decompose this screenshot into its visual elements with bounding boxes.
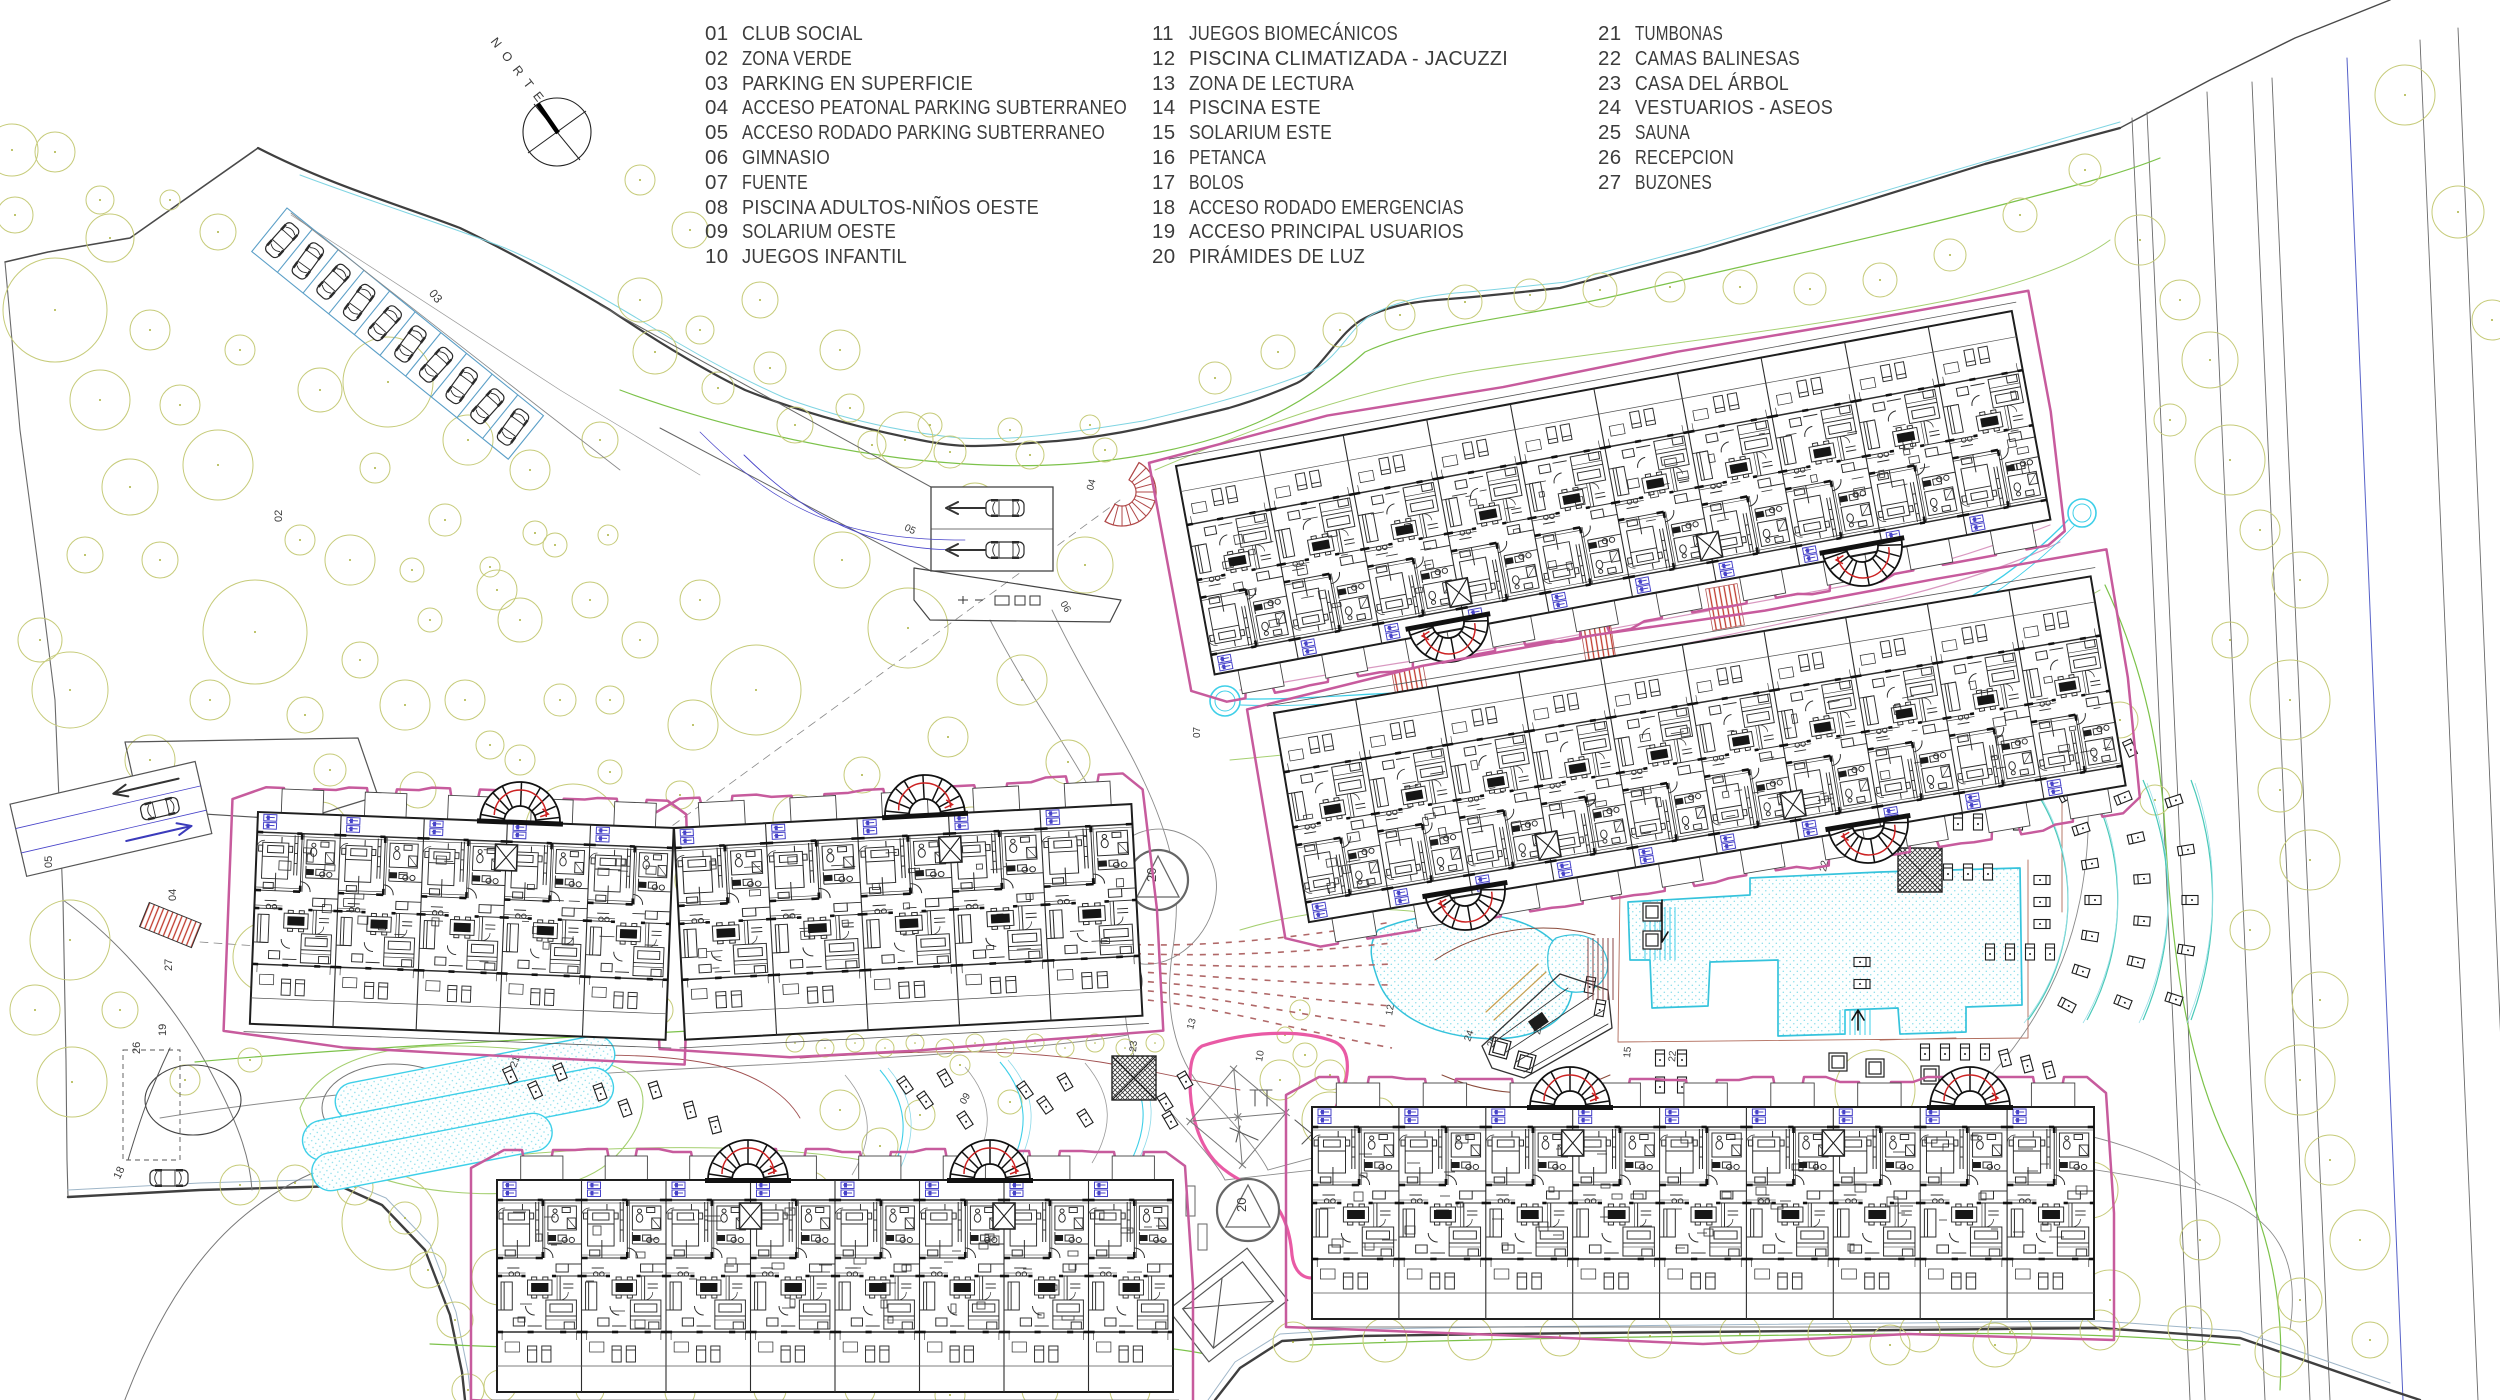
svg-text:ACCESO PEATONAL PARKING SUBTER: ACCESO PEATONAL PARKING SUBTERRANEO	[742, 96, 1127, 119]
svg-text:04: 04	[705, 96, 728, 119]
svg-text:RECEPCION: RECEPCION	[1635, 146, 1734, 169]
svg-text:BOLOS: BOLOS	[1189, 171, 1244, 194]
svg-text:23: 23	[1128, 1040, 1140, 1052]
svg-text:21: 21	[1598, 22, 1621, 45]
svg-text:26: 26	[131, 1042, 143, 1054]
svg-text:PARKING EN SUPERFICIE: PARKING EN SUPERFICIE	[742, 72, 973, 95]
svg-text:JUEGOS INFANTIL: JUEGOS INFANTIL	[742, 245, 907, 268]
svg-text:PISCINA ESTE: PISCINA ESTE	[1189, 96, 1321, 119]
svg-text:25: 25	[1598, 121, 1621, 144]
svg-text:12: 12	[1152, 47, 1175, 70]
svg-text:CLUB SOCIAL: CLUB SOCIAL	[742, 22, 863, 45]
svg-text:07: 07	[1192, 726, 1203, 738]
svg-text:11: 11	[1152, 22, 1174, 45]
svg-text:SOLARIUM OESTE: SOLARIUM OESTE	[742, 220, 896, 243]
svg-text:15: 15	[1622, 1046, 1634, 1058]
svg-text:05: 05	[705, 121, 728, 144]
svg-text:27: 27	[163, 959, 175, 971]
svg-text:CAMAS BALINESAS: CAMAS BALINESAS	[1635, 47, 1800, 70]
svg-text:22: 22	[1667, 1050, 1679, 1062]
svg-text:08: 08	[705, 196, 728, 219]
svg-text:02: 02	[273, 510, 285, 522]
svg-text:26: 26	[1598, 146, 1621, 169]
svg-text:ACCESO PRINCIPAL USUARIOS: ACCESO PRINCIPAL USUARIOS	[1189, 220, 1464, 243]
svg-text:CASA DEL ÁRBOL: CASA DEL ÁRBOL	[1635, 72, 1789, 95]
svg-text:06: 06	[705, 146, 728, 169]
svg-text:19: 19	[157, 1024, 169, 1036]
svg-text:22: 22	[1598, 47, 1621, 70]
svg-text:PISCINA ADULTOS-NIÑOS OESTE: PISCINA ADULTOS-NIÑOS OESTE	[742, 196, 1039, 219]
svg-text:FUENTE: FUENTE	[742, 171, 808, 194]
svg-text:09: 09	[705, 220, 728, 243]
svg-text:05: 05	[43, 856, 55, 868]
svg-text:GIMNASIO: GIMNASIO	[742, 146, 830, 169]
svg-text:ZONA DE LECTURA: ZONA DE LECTURA	[1189, 72, 1354, 95]
svg-text:04: 04	[167, 889, 179, 901]
svg-text:14: 14	[1152, 96, 1175, 119]
svg-text:PETANCA: PETANCA	[1189, 146, 1266, 169]
svg-text:13: 13	[1152, 72, 1175, 95]
svg-text:02: 02	[705, 47, 728, 70]
svg-text:19: 19	[1152, 220, 1175, 243]
svg-text:01: 01	[705, 22, 728, 45]
svg-text:15: 15	[1152, 121, 1175, 144]
svg-text:SOLARIUM ESTE: SOLARIUM ESTE	[1189, 121, 1332, 144]
svg-text:20: 20	[1234, 1198, 1249, 1212]
svg-text:VESTUARIOS - ASEOS: VESTUARIOS - ASEOS	[1635, 96, 1833, 119]
svg-text:10: 10	[705, 245, 728, 268]
svg-text:JUEGOS BIOMECÁNICOS: JUEGOS BIOMECÁNICOS	[1189, 22, 1398, 45]
svg-text:18: 18	[1152, 196, 1175, 219]
svg-text:23: 23	[1598, 72, 1621, 95]
svg-text:16: 16	[1152, 146, 1175, 169]
svg-text:ACCESO RODADO PARKING SUBTERRA: ACCESO RODADO PARKING SUBTERRANEO	[742, 121, 1105, 144]
svg-text:07: 07	[705, 171, 728, 194]
svg-text:ACCESO RODADO EMERGENCIAS: ACCESO RODADO EMERGENCIAS	[1189, 196, 1464, 219]
svg-text:03: 03	[705, 72, 728, 95]
svg-text:PIRÁMIDES DE LUZ: PIRÁMIDES DE LUZ	[1189, 245, 1365, 268]
svg-text:27: 27	[1598, 171, 1621, 194]
svg-text:24: 24	[1598, 96, 1621, 119]
svg-text:SAUNA: SAUNA	[1635, 121, 1690, 144]
svg-text:BUZONES: BUZONES	[1635, 171, 1712, 194]
svg-text:TUMBONAS: TUMBONAS	[1635, 22, 1723, 45]
svg-text:20: 20	[1152, 245, 1175, 268]
svg-text:17: 17	[1152, 171, 1175, 194]
svg-text:ZONA VERDE: ZONA VERDE	[742, 47, 852, 70]
svg-text:PISCINA CLIMATIZADA - JACUZZI: PISCINA CLIMATIZADA - JACUZZI	[1189, 47, 1508, 70]
